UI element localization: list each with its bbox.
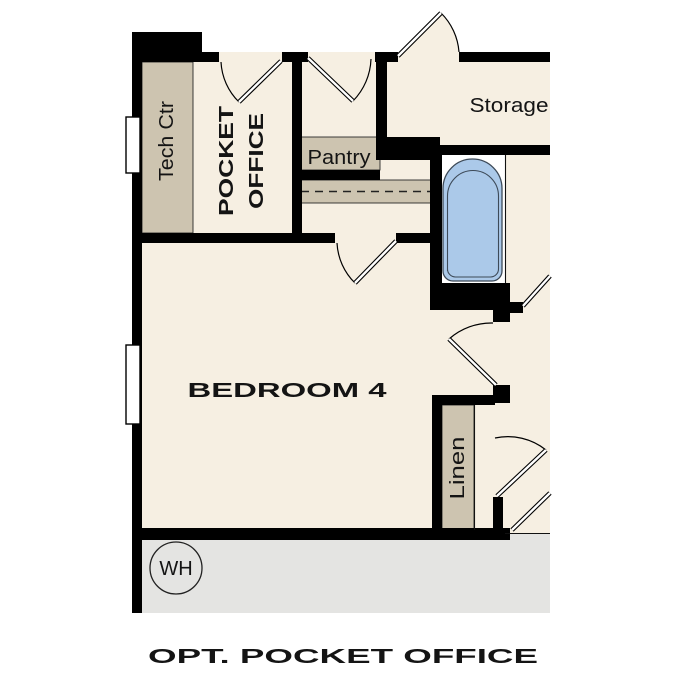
wall: [132, 32, 202, 62]
label-tech-ctr: Tech Ctr: [156, 101, 178, 181]
wall: [202, 52, 219, 62]
wall: [376, 52, 387, 147]
wall: [493, 385, 510, 403]
label-bedroom-4: BEDROOM 4: [188, 380, 388, 402]
label-pantry: Pantry: [308, 147, 371, 169]
label-pocket-office-line2: OFFICE: [246, 113, 268, 209]
wall: [132, 528, 510, 540]
window-icon: [126, 117, 140, 173]
label-pocket-office-line1: POCKET: [216, 106, 238, 216]
wall: [430, 150, 442, 285]
wall: [493, 310, 510, 322]
wall: [396, 233, 432, 243]
wall: [376, 145, 550, 155]
wall: [132, 233, 335, 243]
label-linen: Linen: [447, 437, 469, 500]
garage-floor: [132, 533, 550, 613]
wall: [432, 395, 442, 535]
plan-caption: OPT. POCKET OFFICE: [148, 646, 538, 668]
window-icon: [126, 345, 140, 424]
wall: [459, 52, 550, 62]
bathtub-icon: [443, 159, 502, 281]
label-storage: Storage: [470, 95, 549, 117]
wall: [292, 52, 302, 243]
floor-plan: Tech Ctr POCKET OFFICE Pantry Storage BE…: [0, 0, 687, 687]
label-water-heater: WH: [159, 558, 192, 580]
wall: [292, 170, 380, 180]
bathtub-outer: [443, 159, 502, 281]
floor-plan-svg: Tech Ctr POCKET OFFICE Pantry Storage BE…: [0, 0, 687, 687]
